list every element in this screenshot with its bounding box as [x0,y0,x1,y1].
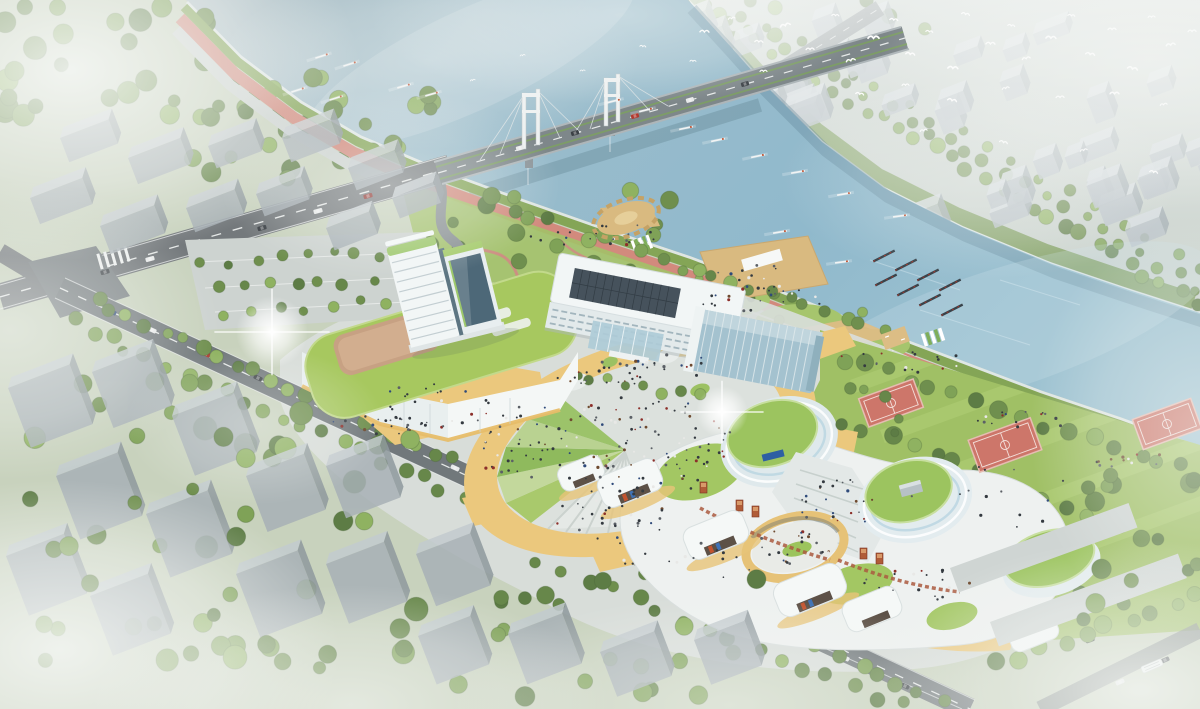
tree [836,419,848,431]
person [611,483,613,485]
person [619,362,622,365]
person [695,374,698,377]
person [1013,469,1015,471]
person [530,444,532,446]
person [679,468,681,470]
person [911,495,913,497]
person [1001,414,1003,416]
person [631,378,633,380]
person [637,522,640,525]
person [505,417,508,420]
person [614,421,617,424]
person [608,459,610,461]
tree [658,253,670,265]
person [637,525,639,527]
person [643,455,645,457]
person [470,413,473,416]
tree [446,451,458,463]
person [595,416,597,418]
person [800,532,802,534]
tree [968,393,984,409]
person [420,422,423,425]
person [686,459,688,461]
person [683,475,685,477]
person [633,451,635,453]
person [604,465,606,467]
person [609,242,612,245]
person [852,481,854,483]
person [742,309,745,312]
person [632,563,634,565]
person [622,559,625,562]
person [389,406,391,408]
person [602,487,604,489]
person [556,522,558,524]
person [583,381,586,384]
person [836,480,838,482]
person [565,430,567,432]
person [605,225,607,227]
person [614,525,617,528]
person [601,522,604,525]
person [723,455,725,457]
person [464,390,467,393]
person [694,427,697,430]
person [773,265,776,268]
person [783,301,785,303]
person [680,364,682,366]
person [681,477,684,480]
person [485,413,487,415]
tree [537,586,555,604]
person [805,495,808,498]
person [618,445,620,447]
person [638,519,641,522]
person [569,231,571,233]
person [768,553,771,556]
person [408,417,411,420]
person [821,551,823,553]
person [577,503,579,505]
person [1000,490,1002,492]
person [775,268,777,270]
person [484,467,487,470]
person [582,518,584,520]
person [894,570,897,573]
person [625,243,628,246]
person [461,421,464,424]
person [822,480,825,483]
person [665,407,668,410]
person [800,540,803,543]
person [583,408,586,411]
person [760,300,762,302]
person [652,485,655,488]
person [618,381,620,383]
tree [678,266,688,276]
person [654,364,656,366]
person [863,364,866,367]
person [668,561,670,563]
person [665,353,668,356]
person [561,505,564,508]
person [722,551,725,554]
person [632,493,635,496]
person [850,512,852,514]
person [881,353,883,355]
person [690,364,693,367]
person [390,419,392,421]
person [630,464,632,466]
person [808,533,810,535]
tree [908,438,922,452]
person [606,519,608,521]
aerial-render-svg: Aerial architectural rendering — riverfr… [0,0,1200,709]
person [978,466,980,468]
person [557,377,559,379]
tree [857,307,867,317]
person [669,410,671,412]
person [608,367,610,369]
person [642,477,645,480]
person [700,362,703,365]
person [597,407,600,410]
person [634,383,636,385]
person [926,574,928,576]
person [525,455,527,457]
person [406,424,409,427]
billboard [752,506,759,517]
person [533,458,535,460]
person [711,303,713,305]
person [696,479,699,482]
person [398,433,400,435]
person [601,361,604,364]
person [629,372,631,374]
billboard [736,500,743,511]
person [544,407,546,409]
person [786,554,788,556]
person [566,445,568,447]
person [654,430,657,433]
tree [555,566,566,577]
person [594,419,596,421]
person [582,507,584,509]
rendering-canvas: Aerial architectural rendering — riverfr… [0,0,1200,709]
person [658,434,660,436]
person [625,239,628,242]
person [914,353,917,356]
person [652,403,654,405]
person [616,536,619,539]
tree [675,386,686,397]
person [678,442,680,444]
person [404,395,406,397]
person [653,459,655,461]
person [801,511,803,513]
person [618,418,621,421]
person [634,429,636,431]
tree [581,232,596,247]
tree [213,281,225,293]
person [627,440,629,442]
person [641,490,644,493]
person [786,561,789,564]
person [629,416,632,419]
tree [883,362,895,374]
person [773,286,775,288]
person [674,410,676,412]
person [451,420,453,422]
person [658,401,660,403]
person [722,450,724,452]
person [597,537,599,539]
billboard [700,482,707,493]
person [650,522,652,524]
tree [594,572,611,589]
person [596,466,599,469]
billboard [876,553,883,564]
person [916,371,919,374]
person [646,367,648,369]
person [685,406,687,408]
person [837,520,839,522]
person [585,478,587,480]
person [878,587,880,589]
person [391,425,393,427]
person [667,456,669,458]
person [830,508,833,511]
person [741,269,744,272]
person [621,505,623,507]
person [624,380,626,382]
person [1016,526,1018,528]
person [715,294,717,296]
person [747,276,750,279]
person [518,443,520,445]
person [708,443,710,445]
person [716,549,719,552]
tree [293,278,305,290]
person [576,436,578,438]
tree [328,301,339,312]
person [750,274,753,277]
person [782,290,784,292]
tree [254,256,264,266]
person [825,498,827,500]
tree [584,375,594,385]
person [763,278,765,280]
person [625,364,628,367]
person [748,569,750,571]
person [846,489,849,492]
person [578,529,581,532]
person [606,467,609,470]
person [983,421,986,424]
person [483,447,485,449]
person [937,358,940,361]
person [552,447,555,450]
tree [431,484,444,497]
person [578,371,580,373]
person [615,409,617,411]
person [674,455,677,458]
person [612,238,614,240]
person [637,496,639,498]
person [569,452,571,454]
person [559,464,562,467]
tree [920,380,935,395]
person [645,426,648,429]
person [706,461,709,464]
tree [747,570,766,589]
person [442,425,444,427]
person [687,402,689,404]
person [690,487,693,490]
person [492,466,495,469]
person [516,417,518,419]
person [749,309,752,312]
tree [224,261,233,270]
person [608,382,611,385]
person [714,304,716,306]
person [807,535,810,538]
person [1016,425,1019,428]
person [557,427,560,430]
person [706,465,708,467]
person [647,418,650,421]
person [498,433,501,436]
person [406,426,408,428]
person [768,290,770,292]
person [440,390,442,392]
person [955,354,958,357]
person [538,441,540,443]
person [757,287,760,290]
person [477,419,479,421]
person [610,419,613,422]
person [911,369,913,371]
person [398,386,401,389]
person [697,456,700,459]
person [760,537,763,540]
tree [796,299,807,310]
person [539,239,542,242]
person [788,562,791,565]
tree [511,253,527,269]
person [863,500,865,502]
person [507,469,510,472]
person [710,294,713,297]
person [425,388,427,390]
person [636,375,638,377]
person [644,553,646,555]
person [569,380,571,382]
person [638,477,640,479]
tree [401,430,420,449]
person [599,476,602,479]
person [518,406,521,409]
person [545,425,547,427]
tree [856,354,873,371]
person [591,490,593,492]
tree [634,244,647,257]
person [1025,411,1027,413]
person [426,422,428,424]
tree [312,276,322,286]
person [783,560,785,562]
person [628,241,630,243]
person [717,272,719,274]
person [485,441,487,443]
person [496,454,498,456]
person [536,423,538,425]
person [892,589,894,591]
person [727,298,730,301]
tree [355,512,373,530]
person [659,482,662,485]
person [391,408,393,410]
person [676,464,678,466]
tree [518,592,531,605]
person [991,423,993,425]
person [985,495,988,498]
person [618,476,620,478]
tree [399,463,414,478]
person [499,425,502,428]
tree [638,381,647,390]
person [625,442,627,444]
tree [240,281,249,290]
person [601,225,604,228]
tree [837,354,853,370]
person [659,517,662,520]
person [774,293,776,295]
person [695,459,698,462]
person [977,420,979,422]
tree [945,386,957,398]
tree [661,191,679,209]
person [603,512,606,515]
person [700,542,703,545]
person [805,500,807,502]
person [580,382,582,384]
person [502,415,504,417]
person [639,426,641,428]
person [639,376,641,378]
person [729,272,732,275]
person [917,588,920,591]
person [801,537,803,539]
person [636,486,639,489]
person [763,287,765,289]
person [855,500,858,503]
person [694,437,696,439]
person [530,476,533,479]
person [831,485,834,488]
person [588,406,590,408]
person [777,551,780,554]
person [557,231,559,233]
person [582,462,584,464]
person [634,360,637,363]
person [597,455,599,457]
person [815,542,818,545]
person [606,382,608,384]
person [638,407,640,409]
person [565,237,567,239]
person [665,464,668,467]
